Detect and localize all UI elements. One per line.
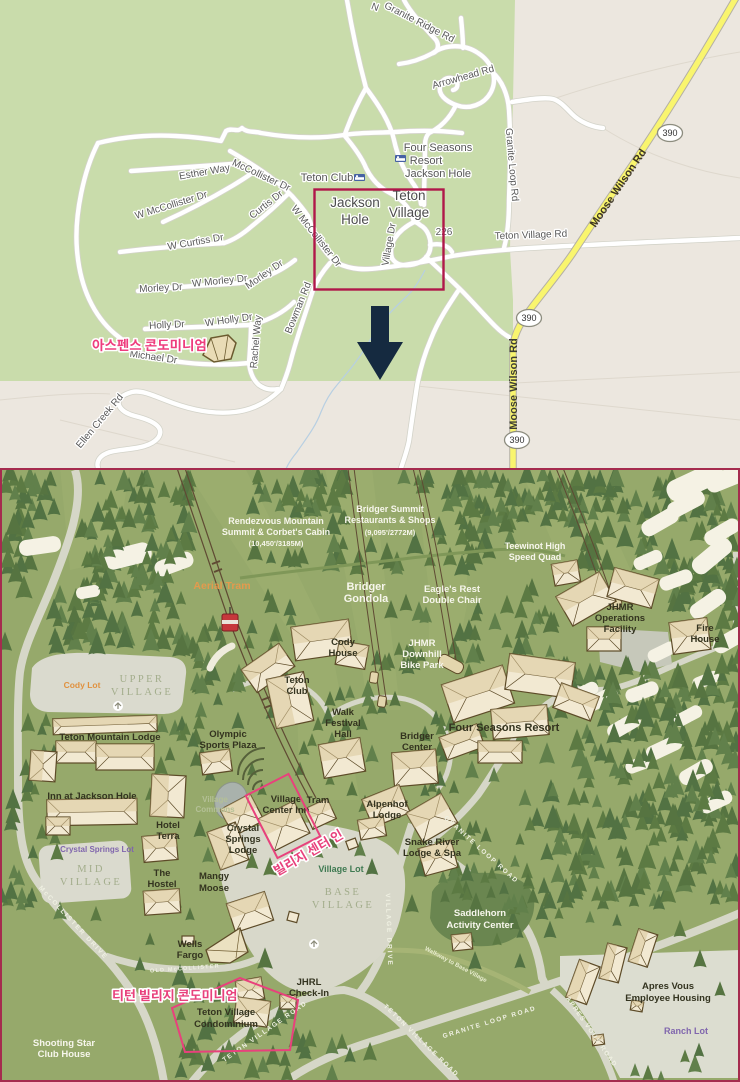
svg-text:Hostel: Hostel	[147, 879, 176, 890]
svg-text:Walk: Walk	[332, 707, 355, 718]
svg-text:Ranch Lot: Ranch Lot	[664, 1026, 708, 1036]
svg-text:Wells: Wells	[178, 939, 203, 950]
svg-text:MID: MID	[77, 864, 105, 875]
svg-text:Hotel: Hotel	[156, 820, 180, 831]
svg-text:Teton Club: Teton Club	[301, 172, 354, 184]
svg-text:BASE: BASE	[325, 887, 361, 898]
svg-text:390: 390	[662, 128, 677, 138]
svg-text:(9,095'/2772M): (9,095'/2772M)	[365, 528, 416, 537]
svg-text:JHMR: JHMR	[607, 602, 634, 613]
svg-text:Downhill: Downhill	[402, 649, 442, 660]
svg-text:Commons: Commons	[195, 805, 235, 814]
svg-text:390: 390	[509, 435, 524, 445]
svg-text:JHRL: JHRL	[297, 977, 322, 988]
svg-text:Lodge: Lodge	[373, 810, 402, 821]
svg-text:Sports Plaza: Sports Plaza	[199, 740, 257, 751]
svg-text:Holly Dr: Holly Dr	[149, 319, 186, 332]
svg-text:390: 390	[521, 313, 536, 323]
svg-text:Club: Club	[286, 686, 307, 697]
svg-text:Speed Quad: Speed Quad	[509, 552, 562, 562]
svg-text:Hole: Hole	[341, 212, 369, 227]
svg-text:Moose Wilson Rd: Moose Wilson Rd	[508, 338, 520, 430]
svg-text:Teton Mountain Lodge: Teton Mountain Lodge	[59, 732, 160, 743]
svg-text:Jackson: Jackson	[330, 195, 380, 210]
svg-text:UPPER: UPPER	[120, 674, 165, 685]
svg-text:VILLAGE: VILLAGE	[312, 900, 374, 911]
svg-text:Facility: Facility	[604, 624, 637, 635]
svg-text:Teton Village: Teton Village	[197, 1007, 255, 1018]
svg-text:Check-In: Check-In	[289, 988, 329, 999]
svg-text:Bike Park: Bike Park	[400, 660, 444, 671]
svg-text:Bridger Summit: Bridger Summit	[356, 504, 424, 514]
svg-text:Center: Center	[402, 742, 432, 753]
svg-text:Rendezvous Mountain: Rendezvous Mountain	[228, 516, 324, 526]
svg-text:VILLAGE: VILLAGE	[60, 877, 122, 888]
svg-text:Resort: Resort	[410, 155, 442, 167]
svg-text:Condominium: Condominium	[194, 1019, 258, 1030]
svg-text:Double Chair: Double Chair	[422, 595, 481, 606]
svg-text:Gondola: Gondola	[344, 593, 389, 605]
svg-text:Crystal: Crystal	[227, 823, 259, 834]
svg-text:Springs: Springs	[225, 834, 260, 845]
svg-text:Apres Vous: Apres Vous	[642, 981, 694, 992]
svg-text:Village Lot: Village Lot	[318, 864, 363, 874]
svg-text:Tram: Tram	[307, 795, 330, 806]
svg-text:Eagle's Rest: Eagle's Rest	[424, 584, 481, 595]
svg-text:Teewinot High: Teewinot High	[505, 541, 566, 551]
svg-text:Alpenhof: Alpenhof	[366, 799, 408, 810]
svg-text:Saddlehorn: Saddlehorn	[454, 908, 506, 919]
svg-text:Cody Lot: Cody Lot	[64, 680, 101, 690]
svg-text:Lodge: Lodge	[229, 845, 258, 856]
svg-text:Summit & Corbet's Cabin: Summit & Corbet's Cabin	[222, 527, 330, 537]
svg-text:House: House	[690, 634, 719, 645]
svg-text:Snake River: Snake River	[405, 837, 460, 848]
svg-text:Village: Village	[271, 794, 301, 805]
svg-text:Operations: Operations	[595, 613, 645, 624]
svg-text:Fire: Fire	[696, 623, 713, 634]
svg-text:Hall: Hall	[334, 729, 351, 740]
svg-text:Club House: Club House	[38, 1049, 91, 1060]
svg-text:Olympic: Olympic	[209, 729, 247, 740]
svg-text:JHMR: JHMR	[409, 638, 436, 649]
svg-text:Village: Village	[389, 205, 429, 220]
svg-text:Jackson Hole: Jackson Hole	[405, 168, 471, 180]
svg-text:Cody: Cody	[331, 637, 355, 648]
svg-text:VILLAGE: VILLAGE	[111, 687, 173, 698]
svg-text:Crystal Springs Lot: Crystal Springs Lot	[60, 845, 134, 854]
svg-text:Moose: Moose	[199, 883, 229, 894]
svg-text:Four Seasons: Four Seasons	[404, 142, 473, 154]
svg-text:Terra: Terra	[156, 831, 180, 842]
svg-text:Fargo: Fargo	[177, 950, 204, 961]
svg-text:Shooting Star: Shooting Star	[33, 1038, 96, 1049]
svg-text:Restaurants & Shops: Restaurants & Shops	[344, 515, 435, 525]
svg-text:Bridger: Bridger	[400, 731, 434, 742]
svg-text:House: House	[328, 648, 357, 659]
svg-text:Village: Village	[202, 795, 228, 804]
svg-text:Mangy: Mangy	[199, 871, 230, 882]
svg-text:The: The	[154, 868, 171, 879]
svg-text:Lodge & Spa: Lodge & Spa	[403, 848, 462, 859]
svg-text:Four Seasons Resort: Four Seasons Resort	[449, 722, 560, 734]
svg-text:Inn at Jackson Hole: Inn at Jackson Hole	[47, 791, 136, 802]
svg-text:Aerial Tram: Aerial Tram	[193, 580, 250, 592]
svg-text:Bridger: Bridger	[346, 581, 386, 593]
svg-text:Teton: Teton	[284, 675, 309, 686]
svg-text:Festival: Festival	[325, 718, 360, 729]
svg-text:(10,450'/3185M): (10,450'/3185M)	[249, 539, 304, 548]
svg-text:Center Inn: Center Inn	[263, 805, 310, 816]
svg-text:Activity Center: Activity Center	[446, 920, 513, 931]
svg-text:Morley Dr: Morley Dr	[139, 282, 184, 295]
svg-text:Employee Housing: Employee Housing	[625, 993, 711, 1004]
